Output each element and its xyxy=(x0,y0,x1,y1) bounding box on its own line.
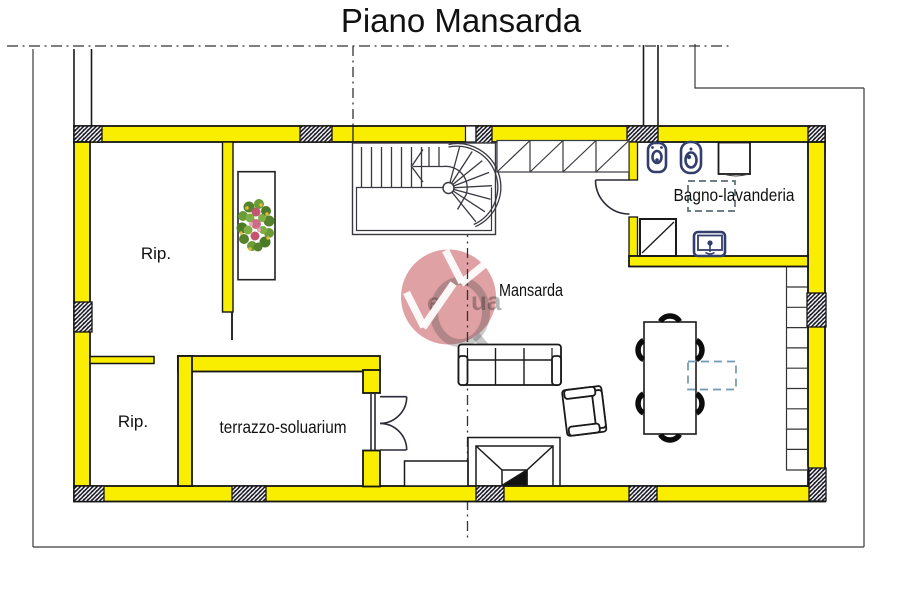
svg-text:ua: ua xyxy=(471,286,502,316)
svg-text:terrazzo-soluarium: terrazzo-soluarium xyxy=(220,417,347,437)
svg-text:Mansarda: Mansarda xyxy=(499,280,563,300)
svg-text:Bagno-lavanderia: Bagno-lavanderia xyxy=(674,185,795,205)
svg-text:Piano Mansarda: Piano Mansarda xyxy=(341,2,582,39)
svg-text:Rip.: Rip. xyxy=(141,244,171,263)
svg-text:Rip.: Rip. xyxy=(118,412,148,431)
